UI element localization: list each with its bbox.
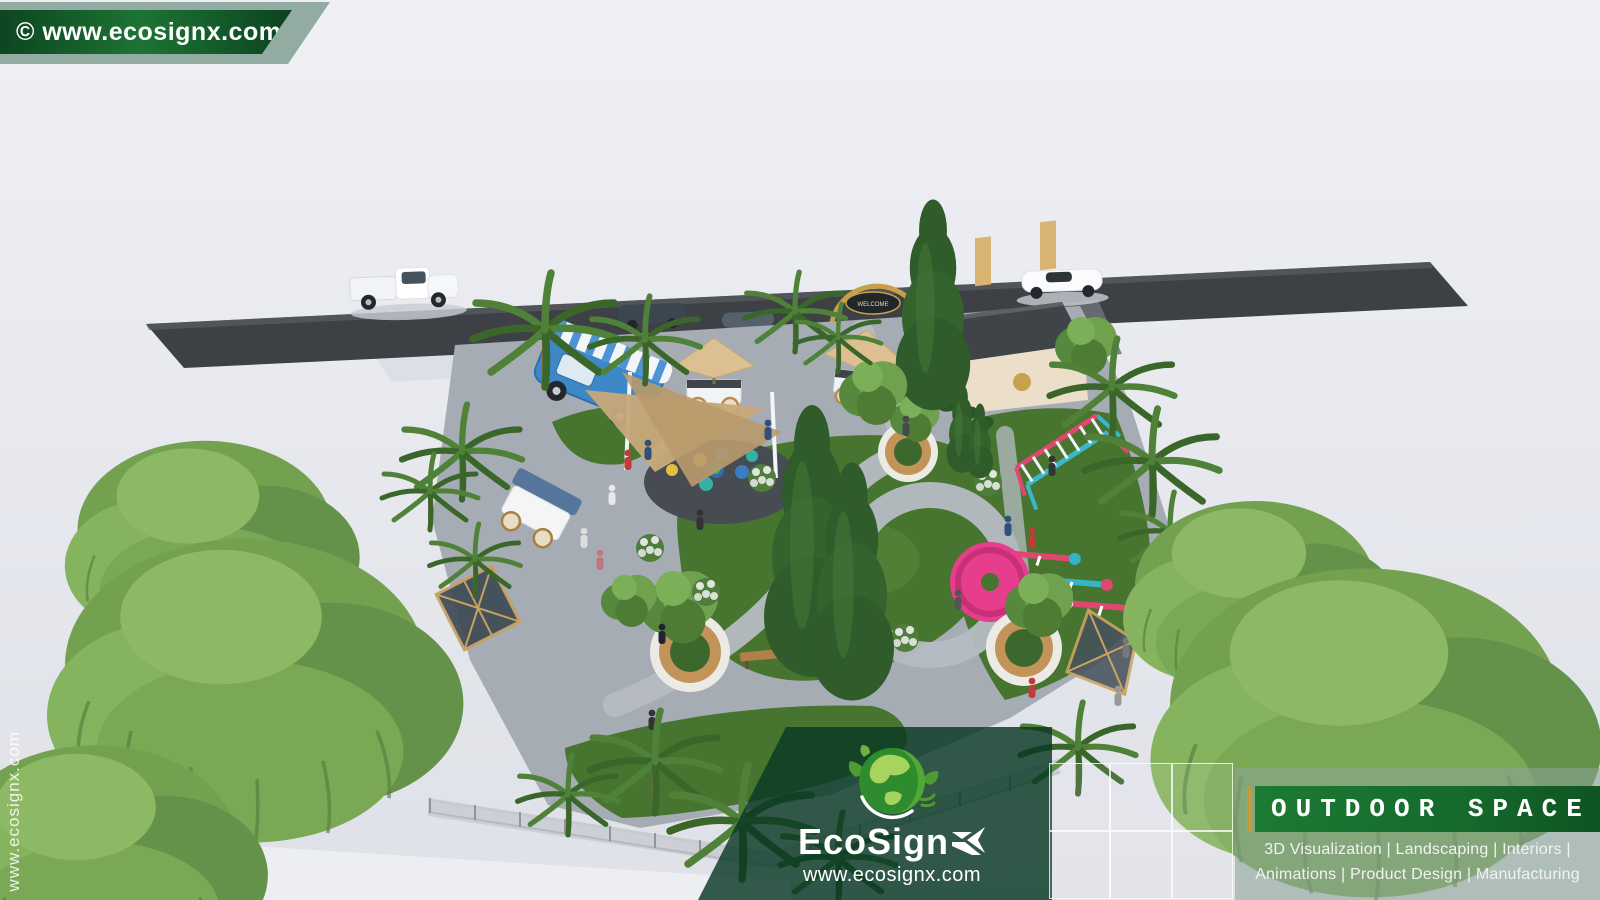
watermark-grid-cell [1049,831,1110,899]
convertible-car [1016,268,1109,307]
watermark-grid [1049,763,1233,899]
ecosignx-globe-logo-icon [842,735,942,827]
panel-gold-bar [1247,786,1252,832]
services-line-2: Animations | Product Design | Manufactur… [1235,863,1600,888]
logo-wordmark: EcoSign [798,821,986,863]
watermark-grid-cell [1049,763,1110,831]
side-watermark: www.ecosignx.com [4,731,24,892]
services-line-1: 3D Visualization | Landscaping | Interio… [1235,838,1600,863]
willow-tree-left [0,441,463,900]
copyright-banner-text: © www.ecosignx.com [16,18,281,47]
pickup-truck [349,266,467,322]
poster-canvas: WELCOME [0,0,1600,900]
logo-name: EcoSign [798,821,949,863]
copyright-banner: © www.ecosignx.com [0,10,292,54]
panel-title-box: OUTDOOR SPACE [1255,786,1600,832]
logo-site-url: www.ecosignx.com [803,864,981,887]
watermark-grid-cell [1110,763,1171,831]
logo-x-icon [952,827,986,857]
watermark-grid-cell [1172,831,1233,899]
panel-services: 3D Visualization | Landscaping | Interio… [1235,838,1600,888]
services-panel: OUTDOOR SPACE 3D Visualization | Landsca… [1235,768,1600,900]
watermark-grid-cell [1110,831,1171,899]
welcome-sign: WELCOME [857,302,888,308]
panel-title: OUTDOOR SPACE [1271,794,1591,824]
watermark-grid-cell [1172,763,1233,831]
